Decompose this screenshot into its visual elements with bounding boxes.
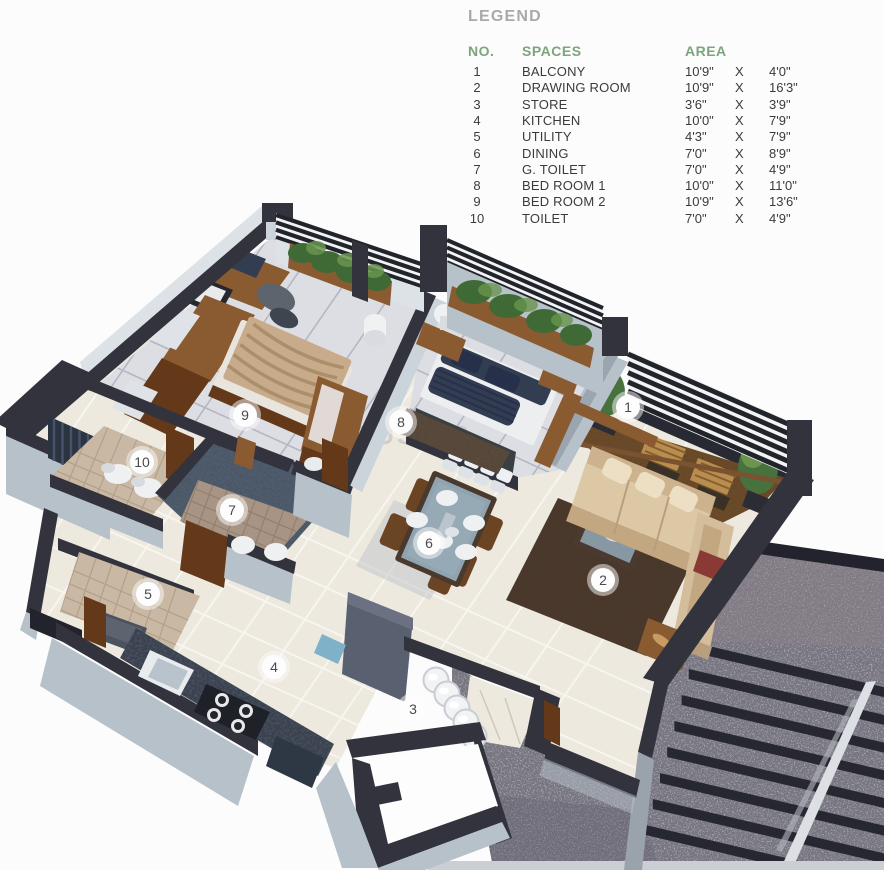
svg-text:1: 1 — [624, 399, 632, 415]
svg-text:10: 10 — [134, 454, 150, 470]
svg-text:3: 3 — [409, 701, 417, 717]
svg-text:7: 7 — [228, 502, 236, 518]
svg-text:4: 4 — [270, 659, 278, 675]
svg-text:6: 6 — [425, 535, 433, 551]
svg-text:8: 8 — [397, 414, 405, 430]
svg-text:9: 9 — [241, 407, 249, 423]
svg-text:2: 2 — [599, 572, 607, 588]
svg-text:5: 5 — [144, 586, 152, 602]
